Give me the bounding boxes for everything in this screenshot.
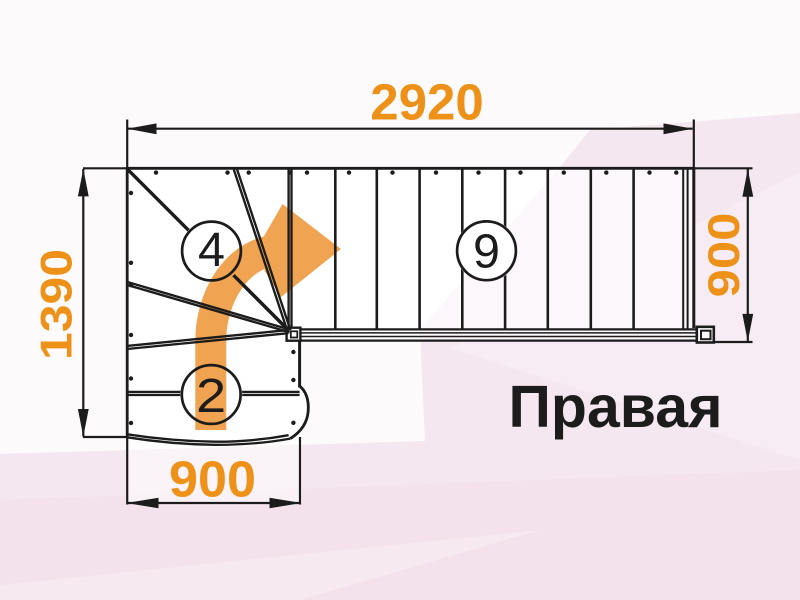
svg-text:Правая: Правая xyxy=(509,374,723,440)
svg-text:9: 9 xyxy=(473,224,500,278)
svg-text:900: 900 xyxy=(169,451,256,508)
svg-text:900: 900 xyxy=(700,213,749,298)
svg-text:2920: 2920 xyxy=(370,74,483,131)
svg-text:4: 4 xyxy=(198,223,225,277)
svg-text:2: 2 xyxy=(196,369,226,423)
svg-text:1390: 1390 xyxy=(33,249,82,360)
